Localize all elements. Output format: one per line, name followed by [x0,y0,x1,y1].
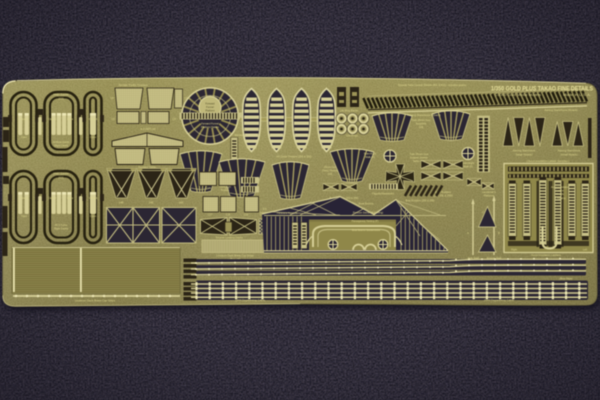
svg-text:Supports: Supports [416,122,427,126]
svg-text:Closed: Closed [48,117,57,121]
svg-text:C5: C5 [111,117,115,121]
svg-text:Life Rings: Life Rings [346,134,358,138]
svg-text:Awning Stanchions (4/pack): Awning Stanchions (4/pack) [407,113,440,117]
svg-text:(19): (19) [328,173,333,176]
svg-text:Accommodation: Accommodation [551,186,570,189]
svg-text:B: B [498,231,500,235]
svg-text:Linoleum Deck Brass Cap Strips: Linoleum Deck Brass Cap Strips [75,299,116,303]
svg-text:Twin 25mm Gun: Twin 25mm Gun [410,152,429,156]
svg-text:C18: C18 [225,187,230,190]
svg-text:Closed: Closed [48,196,57,200]
svg-text:(small 4/pack): (small 4/pack) [561,152,578,156]
svg-text:Made in U.S.A.: Made in U.S.A. [563,93,591,97]
svg-text:Open: Open [90,214,97,218]
svg-text:Awning Stanchions: Awning Stanchions [513,149,536,153]
svg-text:Open: Open [67,117,74,121]
svg-text:Boat Booms Goosenecks: Boat Booms Goosenecks [352,229,381,232]
svg-text:Forward: Forward [205,103,215,106]
svg-text:Aft Cutter Thwarts (256 & 256): Aft Cutter Thwarts (256 & 256) [276,155,311,159]
svg-text:Forward Funnel: Forward Funnel [201,122,219,125]
svg-text:Closed: Closed [20,117,29,121]
svg-text:Left: Left [583,249,587,252]
svg-text:Awning Stanchions (4/pack): Awning Stanchions (4/pack) [544,108,577,112]
svg-text:Closed: Closed [89,196,98,200]
svg-text:Boat Rudders (256 & 256): Boat Rudders (256 & 256) [405,200,434,203]
svg-text:Boat Booms: Boat Booms [359,202,374,206]
svg-text:Paravane Fenders: Paravane Fenders [277,212,298,215]
svg-text:Awning Stanchions: Awning Stanchions [558,149,581,153]
svg-text:Platforms: Platforms [484,195,495,198]
svg-text:Slight Davits: Slight Davits [54,144,69,148]
svg-text:Passageway Netting (P): Passageway Netting (P) [352,220,379,223]
svg-text:C17: C17 [206,187,211,190]
svg-text:(XX): (XX) [58,96,64,100]
svg-text:C18: C18 [226,213,231,216]
svg-text:Ladder: Ladder [556,190,564,193]
svg-text:1/350 GOLD PLUS TAKAO FINE DET: 1/350 GOLD PLUS TAKAO FINE DETAILS [491,86,594,93]
svg-text:Open: Open [21,214,28,218]
svg-text:D.F.: D.F. [263,208,268,211]
svg-text:Support Interior: Support Interior [410,156,428,160]
svg-text:C17: C17 [208,213,213,216]
svg-text:Twin 25mm Gun: Twin 25mm Gun [412,118,431,122]
svg-text:1944 Degaussing Cable: 1944 Degaussing Cable [235,298,265,302]
svg-text:Torpedo Loading Davits: Torpedo Loading Davits [215,236,243,240]
svg-text:Torpedo Tube Control Shields (: Torpedo Tube Control Shields (#11 & #12)… [398,83,467,87]
svg-text:[ Accommodation Ladder Samples: [ Accommodation Ladder Samples ] [527,159,570,163]
svg-text:(Twin) Thwarts: (Twin) Thwarts [322,170,339,173]
svg-text:Open: Open [21,135,28,139]
svg-text:(19): (19) [419,125,424,129]
svg-text:Closed: Closed [89,117,98,121]
svg-text:(Bow Slips): (Bow Slips) [559,277,572,281]
svg-text:46.5 Turbo: 46.5 Turbo [55,223,68,227]
svg-text:Slight Davits: Slight Davits [54,227,69,231]
svg-text:14B: 14B [119,201,124,205]
svg-text:(large 4/pack): (large 4/pack) [516,152,533,156]
svg-text:Closed: Closed [20,196,29,200]
svg-text:Searchlight: Searchlight [364,153,377,156]
svg-text:(XX): (XX) [58,175,64,179]
svg-text:Life Ring Racks: Life Ring Racks [340,109,359,113]
svg-text:C5: C5 [172,117,176,121]
svg-text:C19: C19 [244,213,249,216]
svg-text:Platform Halves: Platform Halves [201,126,219,129]
svg-text:Linoleum Deck Brass Cap Strips: Linoleum Deck Brass Cap Strips [216,253,254,257]
svg-text:14B: 14B [149,201,154,205]
svg-text:©2000 Gold Medal Models: ©2000 Gold Medal Models [495,93,541,97]
svg-text:14A: 14A [179,201,184,205]
svg-text:A-2 (497) (H): A-2 (497) (H) [140,127,155,131]
svg-text:Accommodation Ladders: Accommodation Ladders [531,253,561,257]
svg-text:Funnel: Funnel [206,106,214,109]
svg-text:Right: Right [511,249,517,252]
svg-text:1944 Degaussing Cable: 1944 Degaussing Cable [484,298,514,302]
svg-text:Pontoon Davits (Hull fitting): Pontoon Davits (Hull fitting) [353,211,383,214]
svg-text:Aerials Trellis Trusses: Aerials Trellis Trusses [118,83,148,87]
svg-text:C6: C6 [110,96,114,100]
svg-text:All Boat Davits: All Boat Davits [53,140,71,144]
svg-text:Details: Details [556,193,564,196]
svg-text:Landsman's: Landsman's [482,191,496,194]
svg-text:C: C [482,210,484,214]
svg-text:Walk (F): Walk (F) [365,156,375,159]
svg-text:Platform: Platform [205,110,214,113]
svg-text:Walk (F): Walk (F) [463,166,473,169]
svg-text:Searchlight: Searchlight [462,162,475,165]
svg-text:Pagoda Mastworks: Pagoda Mastworks [372,192,395,196]
svg-text:Open: Open [67,196,74,200]
svg-text:& Rigging: & Rigging [555,197,566,200]
svg-text:Open: Open [90,135,97,139]
svg-text:25mm Gun: 25mm Gun [324,166,337,169]
svg-text:A: A [467,231,469,235]
